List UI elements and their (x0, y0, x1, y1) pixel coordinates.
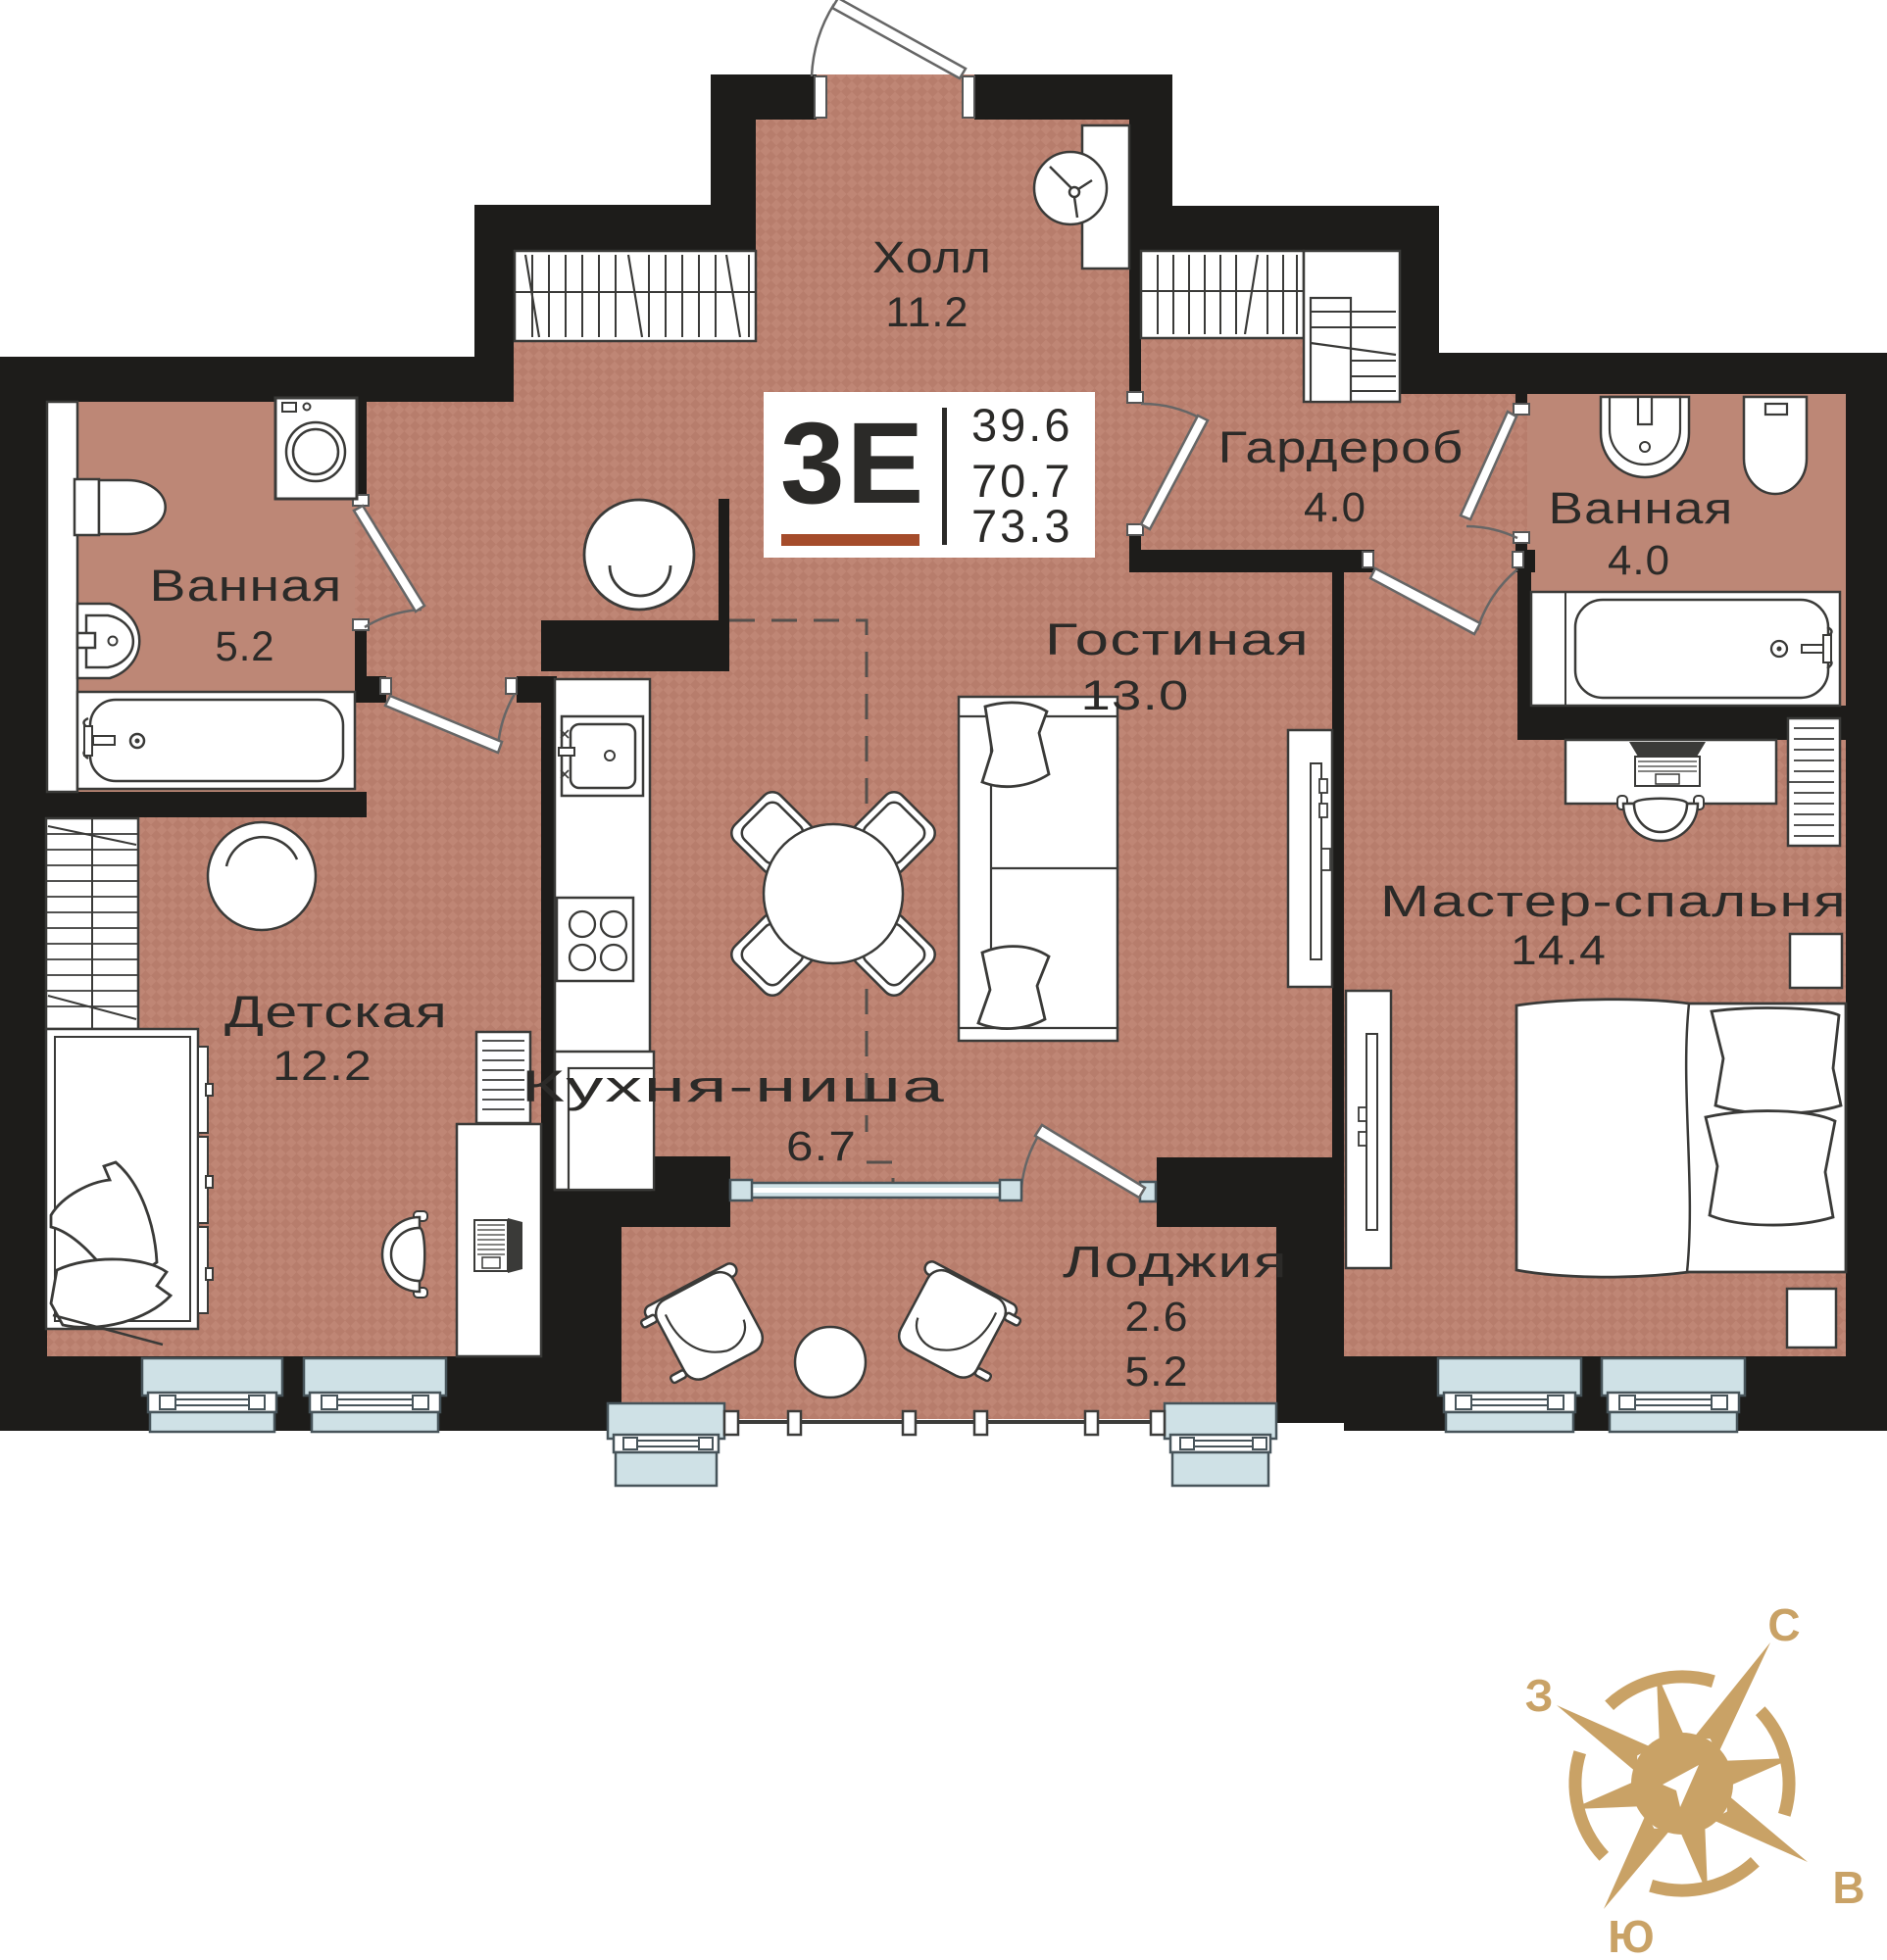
svg-text:З: З (1525, 1670, 1554, 1721)
svg-text:Детская: Детская (224, 987, 448, 1037)
svg-text:12.2: 12.2 (273, 1043, 372, 1090)
svg-text:С: С (1767, 1599, 1800, 1650)
svg-text:Кухня-ниша: Кухня-ниша (521, 1061, 946, 1111)
svg-text:39.6: 39.6 (971, 399, 1072, 451)
svg-text:Холл: Холл (872, 232, 992, 282)
svg-text:Ю: Ю (1608, 1911, 1654, 1960)
svg-text:2.6: 2.6 (1125, 1294, 1189, 1341)
svg-text:4.0: 4.0 (1608, 537, 1670, 584)
svg-text:Гостиная: Гостиная (1045, 614, 1310, 664)
svg-text:В: В (1832, 1862, 1864, 1913)
svg-text:Ванная: Ванная (150, 561, 343, 611)
svg-text:11.2: 11.2 (886, 289, 969, 336)
svg-text:5.2: 5.2 (1125, 1348, 1189, 1396)
svg-text:5.2: 5.2 (216, 623, 275, 670)
svg-text:14.4: 14.4 (1511, 927, 1607, 974)
svg-text:6.7: 6.7 (786, 1123, 857, 1170)
svg-text:Гардероб: Гардероб (1218, 422, 1465, 472)
svg-text:Лоджия: Лоджия (1063, 1237, 1288, 1287)
svg-text:4.0: 4.0 (1304, 484, 1366, 531)
svg-text:13.0: 13.0 (1081, 672, 1190, 719)
svg-text:Ванная: Ванная (1549, 483, 1734, 533)
svg-text:Мастер-спальня: Мастер-спальня (1380, 876, 1847, 926)
svg-text:3Е: 3Е (780, 399, 925, 528)
svg-text:73.3: 73.3 (971, 500, 1072, 552)
